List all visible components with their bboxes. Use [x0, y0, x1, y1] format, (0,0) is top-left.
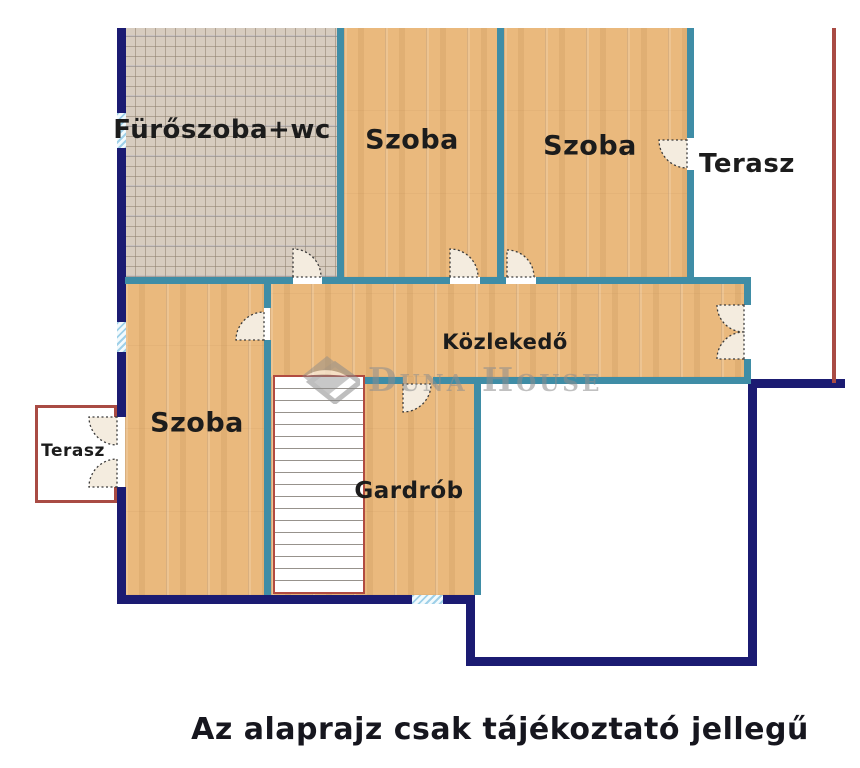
room-label-terrace-left: Terasz	[41, 441, 105, 461]
window-marker	[117, 322, 126, 352]
wall-segment	[744, 359, 751, 379]
floor-room-left	[125, 284, 264, 595]
wall-segment	[117, 28, 126, 113]
wall-segment	[117, 148, 126, 322]
room-label-terrace-top-right: Terasz	[699, 149, 795, 179]
room-label-bathroom: Fürőszoba+wc	[113, 115, 331, 145]
wall-segment	[337, 28, 344, 284]
floor-plan: Fürőszoba+wc Szoba Szoba Terasz Közleked…	[0, 0, 860, 768]
wall-segment	[748, 379, 757, 666]
wall-segment	[497, 28, 504, 284]
wall-segment	[117, 352, 126, 417]
room-label-room-top-right: Szoba	[543, 131, 637, 162]
wall-segment	[687, 170, 694, 284]
wall-segment	[365, 377, 403, 384]
wall-segment	[536, 277, 751, 284]
window-marker	[412, 595, 443, 604]
wall-segment	[474, 377, 481, 595]
floor-bathroom	[125, 28, 337, 277]
room-label-wardrobe: Gardrób	[354, 478, 463, 504]
wall-segment	[748, 379, 845, 388]
stairs	[273, 375, 365, 594]
room-label-room-left: Szoba	[150, 408, 244, 439]
room-label-hallway: Közlekedő	[442, 330, 568, 354]
wall-segment	[466, 595, 475, 666]
room-label-room-top-left: Szoba	[365, 125, 459, 156]
wall-segment	[117, 595, 412, 604]
wall-segment	[687, 28, 694, 138]
wall-segment	[117, 487, 126, 604]
wall-segment	[466, 657, 757, 666]
wall-segment	[125, 277, 293, 284]
wall-segment	[264, 284, 271, 308]
terrace-right-edge	[832, 28, 836, 383]
plan-caption: Az alaprajz csak tájékoztató jellegű	[180, 712, 820, 747]
wall-segment	[744, 284, 751, 305]
wall-segment	[264, 340, 271, 595]
